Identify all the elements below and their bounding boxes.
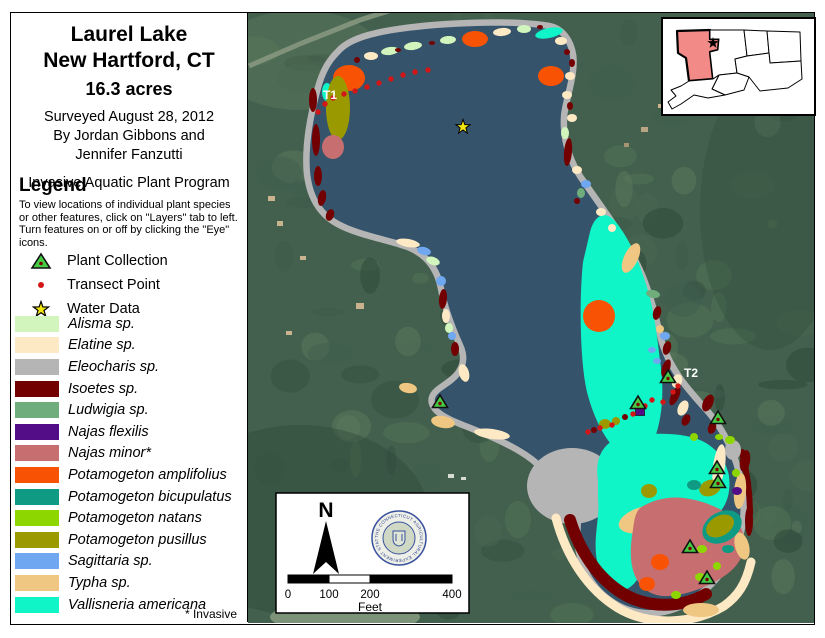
transect-point-marker	[315, 109, 320, 114]
species-patch-pnat	[732, 469, 740, 477]
transect-point-marker	[341, 91, 346, 96]
map-document: T1T2NTHE CONNECTICUT AGRICULTURAL EXPERI…	[0, 0, 825, 638]
species-label: Najas minor*	[68, 445, 151, 461]
species-patch-isoetes	[314, 166, 322, 186]
building	[286, 331, 292, 335]
transect-point-marker	[670, 389, 675, 394]
species-patch-sagittaria	[581, 180, 591, 188]
lake-acreage: 16.3 acres	[11, 77, 247, 101]
lake-name: Laurel Lake	[11, 22, 247, 48]
scale-tick-label: 0	[285, 589, 291, 601]
species-patch-pnat	[715, 434, 723, 440]
species-patch-isoetes	[622, 414, 628, 420]
transect-point-marker	[322, 101, 327, 106]
legend-species-row: Potamogeton natans	[15, 507, 245, 529]
transect-point-marker	[425, 67, 430, 72]
species-label: Sagittaria sp.	[68, 553, 153, 569]
scale-unit-label: Feet	[358, 600, 383, 614]
scale-tick-label: 400	[442, 589, 461, 601]
transect-label: T1	[323, 88, 337, 102]
legend-color-swatch	[15, 575, 59, 591]
survey-date: Surveyed August 28, 2012	[11, 108, 247, 127]
species-patch-sagittaria	[436, 276, 446, 286]
species-label: Isoetes sp.	[68, 381, 138, 397]
state-inset-map	[662, 18, 815, 115]
scale-tick-label: 100	[319, 589, 338, 601]
species-patch-elatine	[364, 52, 378, 60]
transect-point-marker	[412, 69, 417, 74]
species-patch-pnat	[697, 545, 707, 553]
species-label: Typha sp.	[68, 575, 131, 591]
species-patch-isoetes	[429, 41, 435, 45]
title-block: Laurel Lake New Hartford, CT 16.3 acres …	[11, 13, 247, 191]
north-label: N	[318, 499, 333, 522]
species-patch-sagittaria	[660, 332, 670, 340]
building	[641, 127, 648, 132]
legend-note-line: or other features, click on "Layers" tab…	[19, 212, 247, 225]
transect-point-marker	[649, 397, 654, 402]
legend-heading: Legend	[19, 175, 87, 197]
transect-point-marker	[400, 72, 405, 77]
species-label: Eleocharis sp.	[68, 359, 159, 375]
legend-color-swatch	[15, 359, 59, 375]
transect-point-marker	[597, 425, 602, 430]
legend-species-row: Sagittaria sp.	[15, 551, 245, 573]
species-patch-isoetes	[574, 198, 580, 204]
species-label: Potamogeton bicupulatus	[68, 489, 232, 505]
transect-point-marker	[364, 84, 369, 89]
species-patch-pampl	[538, 66, 564, 86]
species-label: Alisma sp.	[68, 316, 135, 332]
transect-point-marker	[352, 88, 357, 93]
species-patch-elatine	[567, 114, 577, 122]
legend-note-line: Turn features on or off by clicking the …	[19, 224, 247, 237]
legend-species-row: Potamogeton amplifolius	[15, 464, 245, 486]
legend-note-line: To view locations of individual plant sp…	[19, 199, 247, 212]
legend-species-row: Elatine sp.	[15, 335, 245, 357]
transect-point-marker	[630, 411, 635, 416]
species-patch-nminor	[322, 135, 344, 159]
legend-note: To view locations of individual plant sp…	[19, 199, 247, 249]
species-patch-isoetes	[567, 102, 573, 110]
building	[624, 143, 629, 147]
legend-color-swatch	[15, 381, 59, 397]
invasive-footnote: * Invasive	[185, 607, 237, 621]
legend-color-swatch	[15, 553, 59, 569]
species-patch-elatine	[565, 72, 575, 80]
legend-color-swatch	[15, 424, 59, 440]
legend-color-swatch	[15, 337, 59, 353]
species-patch-sagittaria	[648, 347, 656, 353]
species-patch-pnat	[671, 591, 681, 599]
plant-collection-icon	[29, 251, 55, 271]
legend-species-row: Najas flexilis	[15, 421, 245, 443]
species-patch-pbicu	[687, 480, 701, 490]
species-patch-elatine	[442, 309, 450, 323]
species-label: Potamogeton amplifolius	[68, 467, 227, 483]
inset-county	[744, 30, 769, 56]
plant-collection-label: Plant Collection	[67, 253, 168, 269]
species-patch-pampl	[639, 577, 655, 591]
species-label: Elatine sp.	[68, 337, 136, 353]
transect-point-icon	[29, 275, 55, 295]
species-label: Potamogeton pusillus	[68, 532, 207, 548]
legend-color-swatch	[15, 316, 59, 332]
species-patch-isoetes	[395, 48, 401, 52]
species-patch-alisma	[517, 25, 531, 33]
transect-point-marker	[585, 429, 590, 434]
species-patch-sagittaria	[448, 332, 456, 340]
species-patch-isoetes	[312, 124, 320, 156]
species-patch-ludwigia	[577, 188, 585, 198]
species-patch-pnat	[713, 562, 721, 570]
legend-item-transect-point: Transect Point	[21, 273, 243, 297]
amplifolius-bed	[583, 300, 615, 332]
legend-point-items: Plant CollectionTransect PointWater Data	[21, 249, 243, 321]
species-patch-isoetes	[309, 88, 317, 112]
legend-item-plant-collection: Plant Collection	[21, 249, 243, 273]
legend-color-swatch	[15, 510, 59, 526]
building	[461, 477, 466, 480]
legend-color-swatch	[15, 597, 59, 613]
species-patch-typha	[683, 603, 719, 617]
survey-credit: Surveyed August 28, 2012 By Jordan Gibbo…	[11, 108, 247, 165]
legend-species-row: Potamogeton bicupulatus	[15, 486, 245, 508]
species-label: Ludwigia sp.	[68, 402, 149, 418]
species-patch-elatine	[555, 37, 567, 45]
species-patch-isoetes	[537, 25, 543, 29]
species-patch-isoetes	[591, 427, 597, 433]
building	[356, 303, 364, 309]
species-patch-pnat	[690, 433, 698, 441]
legend-species-list: Alisma sp.Elatine sp.Eleocharis sp.Isoet…	[15, 313, 245, 615]
transect-point-marker	[675, 383, 680, 388]
legend-color-swatch	[15, 467, 59, 483]
species-patch-alisma	[445, 323, 453, 333]
building	[268, 196, 275, 201]
species-patch-isoetes	[745, 506, 753, 536]
legend-species-row: Potamogeton pusillus	[15, 529, 245, 551]
surveyor-line2: Jennifer Fanzutti	[11, 146, 247, 165]
species-patch-elatine	[572, 166, 582, 174]
species-patch-isoetes	[569, 59, 575, 67]
species-patch-typha	[656, 325, 664, 333]
species-patch-pbicu	[722, 545, 734, 553]
legend-species-row: Eleocharis sp.	[15, 356, 245, 378]
legend-species-row: Ludwigia sp.	[15, 399, 245, 421]
species-patch-sagittaria	[653, 358, 661, 364]
building	[300, 256, 306, 260]
legend-note-line: icons.	[19, 237, 247, 250]
species-patch-isoetes	[451, 342, 459, 356]
legend-color-swatch	[15, 489, 59, 505]
species-patch-pampl	[462, 31, 488, 47]
town-name: New Hartford, CT	[11, 48, 247, 74]
species-patch-elatine	[562, 91, 572, 99]
building	[448, 474, 454, 478]
legend-species-row: Najas minor*	[15, 443, 245, 465]
species-patch-ppus	[326, 76, 350, 140]
legend-species-row: Isoetes sp.	[15, 378, 245, 400]
legend-species-row: Alisma sp.	[15, 313, 245, 335]
inset-county	[767, 31, 801, 63]
legend-color-swatch	[15, 445, 59, 461]
species-patch-elatine	[596, 208, 606, 216]
species-patch-isoetes	[564, 49, 570, 55]
species-patch-pampl	[651, 554, 669, 570]
transect-point-label: Transect Point	[67, 277, 160, 293]
building	[277, 221, 283, 226]
transect-point-marker	[609, 422, 614, 427]
species-label: Potamogeton natans	[68, 510, 202, 526]
species-patch-ppus	[641, 484, 657, 498]
transect-label: T2	[684, 366, 698, 380]
species-patch-isoetes	[354, 57, 360, 63]
legend-color-swatch	[15, 532, 59, 548]
species-patch-nflex	[732, 487, 742, 495]
legend-species-row: Typha sp.	[15, 572, 245, 594]
species-patch-elatine	[608, 224, 616, 232]
transect-point-marker	[376, 80, 381, 85]
species-patch-alisma	[561, 127, 569, 139]
species-patch-pnat	[725, 436, 735, 444]
transect-point-marker	[660, 399, 665, 404]
surveyor-line1: By Jordan Gibbons and	[11, 127, 247, 146]
transect-point-marker	[388, 76, 393, 81]
info-panel: Laurel Lake New Hartford, CT 16.3 acres …	[11, 13, 248, 622]
species-label: Najas flexilis	[68, 424, 149, 440]
legend-color-swatch	[15, 402, 59, 418]
